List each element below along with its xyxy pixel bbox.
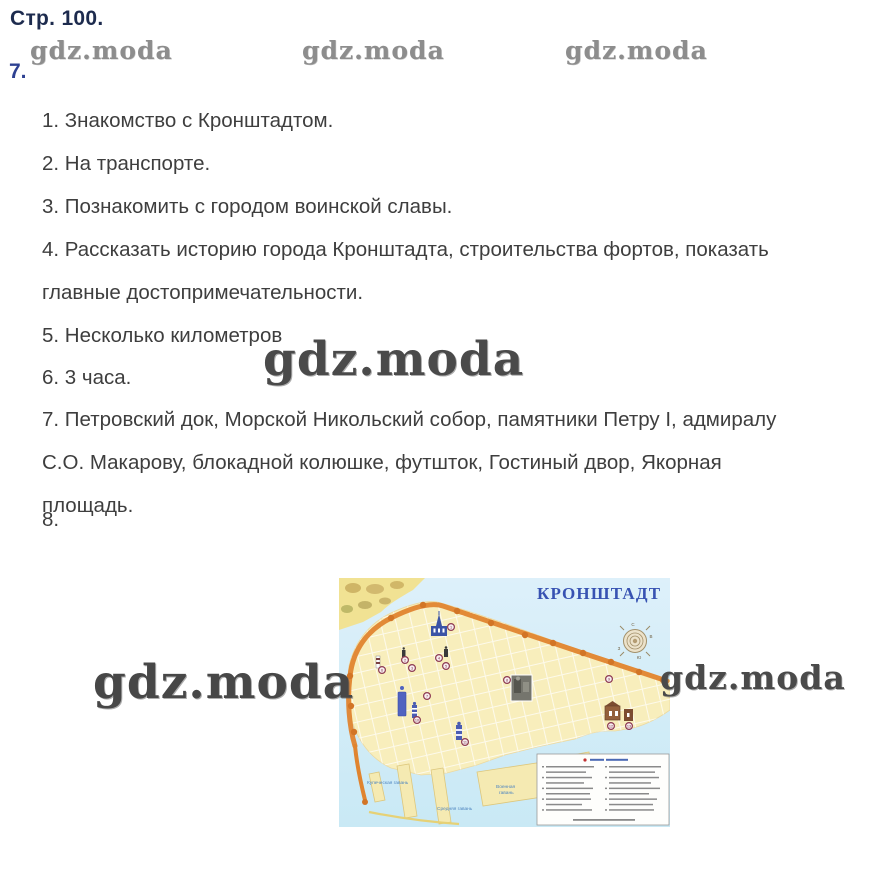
- map-marker: 7: [424, 693, 431, 700]
- answer-item: 2. На транспорте.: [42, 142, 872, 185]
- svg-text:В: В: [649, 634, 652, 639]
- watermark: gdz.moda: [263, 332, 524, 387]
- svg-text:Ю: Ю: [637, 655, 642, 660]
- exercise-number-7: 7.: [9, 60, 27, 84]
- map-marker: 11: [462, 739, 469, 746]
- svg-text:4: 4: [438, 656, 440, 660]
- svg-text:9: 9: [608, 677, 610, 681]
- map-legend: [537, 754, 669, 825]
- svg-text:10: 10: [415, 718, 419, 722]
- harbor-label: Средняя гавань: [437, 806, 473, 812]
- watermark: gdz.moda: [30, 36, 173, 65]
- monument-photo: [511, 675, 532, 701]
- map-marker: 5: [443, 663, 450, 670]
- map-marker: 3: [409, 665, 416, 672]
- exercise-number-8: 8.: [42, 498, 872, 541]
- svg-text:11: 11: [463, 740, 467, 744]
- watermark: gdz.moda: [302, 36, 445, 65]
- harbor-label: гавань: [499, 791, 514, 796]
- map-marker: 2: [402, 657, 409, 664]
- harbor-label: Военная: [496, 784, 516, 790]
- answer-line: 1. Знакомство с Кронштадтом.: [42, 99, 872, 142]
- answer-line: С.О. Макарову, блокадной колюшке, футшто…: [42, 441, 872, 484]
- svg-text:8: 8: [506, 678, 508, 682]
- page-title: Стр. 100.: [10, 7, 104, 31]
- svg-text:3: 3: [411, 666, 413, 670]
- answer-item: 3. Познакомить с городом воинской славы.: [42, 185, 872, 228]
- watermark: gdz.moda: [93, 655, 354, 710]
- answer-line: 2. На транспорте.: [42, 142, 872, 185]
- map-marker: 6: [379, 667, 386, 674]
- answer-item: 4. Рассказать историю города Кронштадта,…: [42, 228, 872, 314]
- answer-page: Стр. 100. gdz.moda gdz.moda gdz.moda 7. …: [0, 0, 876, 878]
- answer-line: 4. Рассказать историю города Кронштадта,…: [42, 228, 872, 271]
- svg-text:7: 7: [426, 694, 428, 698]
- map-marker: 12: [608, 723, 615, 730]
- map-marker: 8: [504, 677, 511, 684]
- svg-text:12: 12: [609, 724, 613, 728]
- watermark: gdz.moda: [660, 658, 846, 697]
- svg-text:1: 1: [450, 625, 452, 629]
- map-marker: 1: [448, 624, 455, 631]
- map-marker: 9: [606, 676, 613, 683]
- svg-text:5: 5: [445, 664, 447, 668]
- answer-line: 3. Познакомить с городом воинской славы.: [42, 185, 872, 228]
- svg-text:2: 2: [404, 658, 406, 662]
- map-marker: 10: [414, 717, 421, 724]
- svg-text:З: З: [618, 646, 621, 651]
- kronstadt-map-image: 1 2 3 4 5 6 7 8 9 10 11 12 13: [339, 578, 670, 827]
- answer-item: 1. Знакомство с Кронштадтом.: [42, 99, 872, 142]
- harbor-label: Купеческая гавань: [367, 780, 409, 786]
- beacon-icon: [376, 656, 380, 668]
- watermark: gdz.moda: [565, 36, 708, 65]
- svg-text:6: 6: [381, 668, 383, 672]
- map-title: КРОНШТАДТ: [537, 584, 661, 603]
- svg-text:13: 13: [627, 724, 631, 728]
- map-marker: 4: [436, 655, 443, 662]
- answer-line: 7. Петровский док, Морской Никольский со…: [42, 398, 872, 441]
- map-marker: 13: [626, 723, 633, 730]
- answer-line: главные достопримечательности.: [42, 271, 872, 314]
